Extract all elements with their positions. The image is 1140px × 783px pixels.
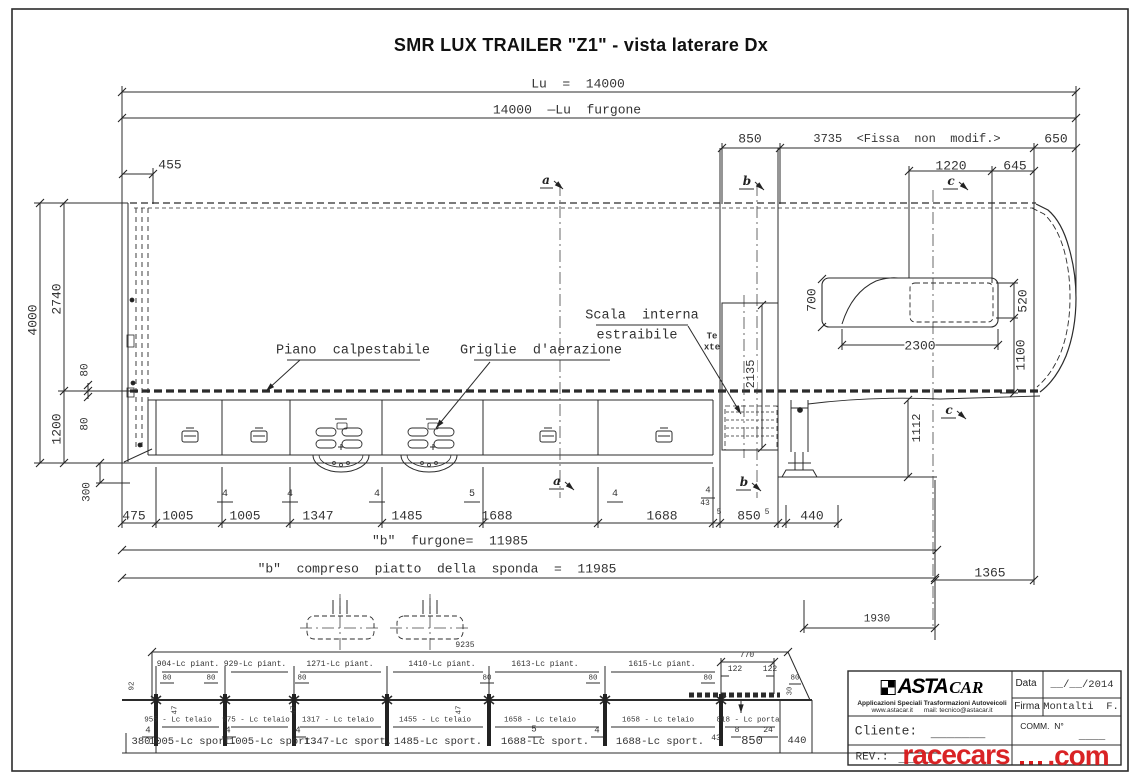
section-c-bottom: c [945,404,952,416]
dim-2740: 2740 [51,283,64,314]
chain-1005b: 1005 [229,510,260,523]
schem-380: 380 [132,737,151,748]
dim-b-furgone: "b" furgone= 11985 [372,535,528,548]
schem-telaio-6: 1658 - Lc telaio [622,717,694,725]
dim-1930: 1930 [864,615,890,626]
tb-cliente-label: Cliente: [855,725,917,738]
tb-cliente-value: _______ [931,727,986,740]
dim-2135: 2135 [745,360,757,389]
schem-sport-6: 1688-Lc sport. [616,737,704,748]
schem-telaio-4: 1455 - Lc telaio [399,717,471,725]
tb-firma-label: Firma [1014,702,1040,712]
gap-5-1: 5 [469,490,475,500]
logo-car-text: CAR [949,678,983,698]
section-a-top: a [542,174,550,186]
schem-telaio-3: 1317 - Lc telaio [302,717,374,725]
schem-80-7: 80 [790,675,799,683]
schem-80-2: 80 [206,675,215,683]
gap-4-1: 4 [222,490,228,500]
schem-sport-3: 1347-Lc sport. [304,737,392,748]
callout-piano: Piano calpestabile [276,344,430,358]
schem-122-left: 122 [728,666,742,674]
dim-1365: 1365 [974,567,1005,580]
section-a-bottom: a [553,475,561,487]
dim-1200: 1200 [51,413,64,444]
gap-5-3: 5 [765,509,770,517]
dim-1220: 1220 [935,160,966,173]
schem-9235: 9235 [455,642,474,650]
astacar-logo: ASTA CAR [881,675,984,699]
schem-sport-5: 1688-Lc sport. [501,737,589,748]
schem-80-5: 80 [588,675,597,683]
section-b-top: b [743,175,751,187]
schem-4-1: 4 [145,727,150,736]
dim-4000: 4000 [27,304,40,335]
chain-475: 475 [122,510,145,523]
schem-piant-5: 1613-Lc piant. [511,661,578,669]
schem-piant-2: 929-Lc piant. [224,661,286,669]
dim-650: 650 [1044,133,1067,146]
schem-4-4: 4 [594,727,599,736]
page-title: SMR LUX TRAILER "Z1" - vista laterare Dx [394,36,768,54]
schem-5-1: 5 [531,726,536,735]
chain-1005a: 1005 [162,510,193,523]
label-te: Te [707,333,718,342]
chain-440: 440 [800,510,823,523]
schem-80-3: 80 [297,675,306,683]
section-b-bottom: b [740,476,748,488]
section-c-top: c [947,175,954,187]
dim-3735-fissa: 3735 <Fissa non modif.> [813,133,1000,145]
logo-contacts: www.astacar.it mail: tecnico@astacar.it [871,708,992,715]
dim-850-top: 850 [738,133,761,146]
schem-850: 850 [741,735,763,747]
drawing-sheet: SMR LUX TRAILER "Z1" - vista laterare Dx… [0,0,1140,783]
schem-sport-4: 1485-Lc sport. [394,737,482,748]
schem-porta: 818 - Lc porta [716,717,779,725]
schem-telaio-2: 975 - Lc telaio [222,717,290,725]
gap-4-2: 4 [287,490,293,500]
dim-1100: 1100 [1015,339,1028,370]
schem-8: 8 [735,727,740,735]
schem-4-3: 4 [295,727,300,736]
tb-data-value: __/__/2014 [1050,680,1113,691]
schem-47-1: 47 [172,705,180,714]
schem-sport-1: 1005-Lc sport. [149,737,237,748]
dim-520: 520 [1017,289,1030,312]
watermark-com: .com [1047,740,1108,772]
dim-300: 300 [83,482,94,502]
dim-1112: 1112 [911,414,923,443]
schem-80-4: 80 [482,675,491,683]
tb-rev-label: REV.: [855,753,888,764]
schem-80-1: 80 [162,675,171,683]
schem-24: 24 [763,727,773,735]
tb-comm-label: COMM. N° [1020,722,1064,731]
dim-lu-total: Lu = 14000 [531,78,625,91]
dim-lu-furgone: 14000 —Lu furgone [493,104,641,117]
chain-1688a: 1688 [481,510,512,523]
callout-scala-1: Scala interna [585,309,698,323]
callout-griglie: Griglie d'aerazione [460,344,622,358]
dim-2300: 2300 [904,340,935,353]
chain-1688b: 1688 [646,510,677,523]
gap-4-5: 4 [705,487,710,496]
tb-firma-value: Montalti F. [1043,702,1119,713]
gap-43: 43 [700,500,710,508]
schem-piant-3: 1271-Lc piant. [306,661,373,669]
schem-80-6: 80 [703,675,712,683]
dim-80-lower: 80 [81,417,92,430]
gap-4-4: 4 [612,490,618,500]
schem-92: 92 [129,681,137,690]
gap-4-3: 4 [374,490,380,500]
checkered-flag-icon [881,680,896,695]
schem-30: 30 [788,687,795,695]
callout-scala-2: estraibile [596,329,677,343]
chain-1485: 1485 [391,510,422,523]
dim-455: 455 [158,159,181,172]
schem-43: 43 [711,735,721,743]
schem-122-right: 122 [763,666,777,674]
tb-data-label: Data [1015,679,1036,689]
watermark-racecars: racecars [902,739,1009,771]
chain-1347: 1347 [302,510,333,523]
schem-telaio-1: 955 - Lc telaio [144,717,212,725]
dim-700: 700 [806,288,819,311]
schem-47-2: 47 [291,705,299,714]
dim-80-upper: 80 [81,363,92,376]
schem-4-2: 4 [225,727,230,736]
schem-piant-1: 904-Lc piant. [157,661,219,669]
schem-telaio-5: 1658 - Lc telaio [504,717,576,725]
dim-b-sponda: "b" compreso piatto della sponda = 11985 [258,563,617,576]
schem-piant-4: 1410-Lc piant. [408,661,475,669]
logo-asta-text: ASTA [898,675,948,699]
chain-850: 850 [737,510,760,523]
schem-770: 770 [740,652,754,660]
gap-5-2: 5 [717,509,722,517]
schem-440: 440 [788,736,807,747]
schem-47-3: 47 [456,705,464,714]
label-xte: xte [704,344,720,353]
schem-piant-6: 1615-Lc piant. [628,661,695,669]
dim-645: 645 [1003,160,1026,173]
